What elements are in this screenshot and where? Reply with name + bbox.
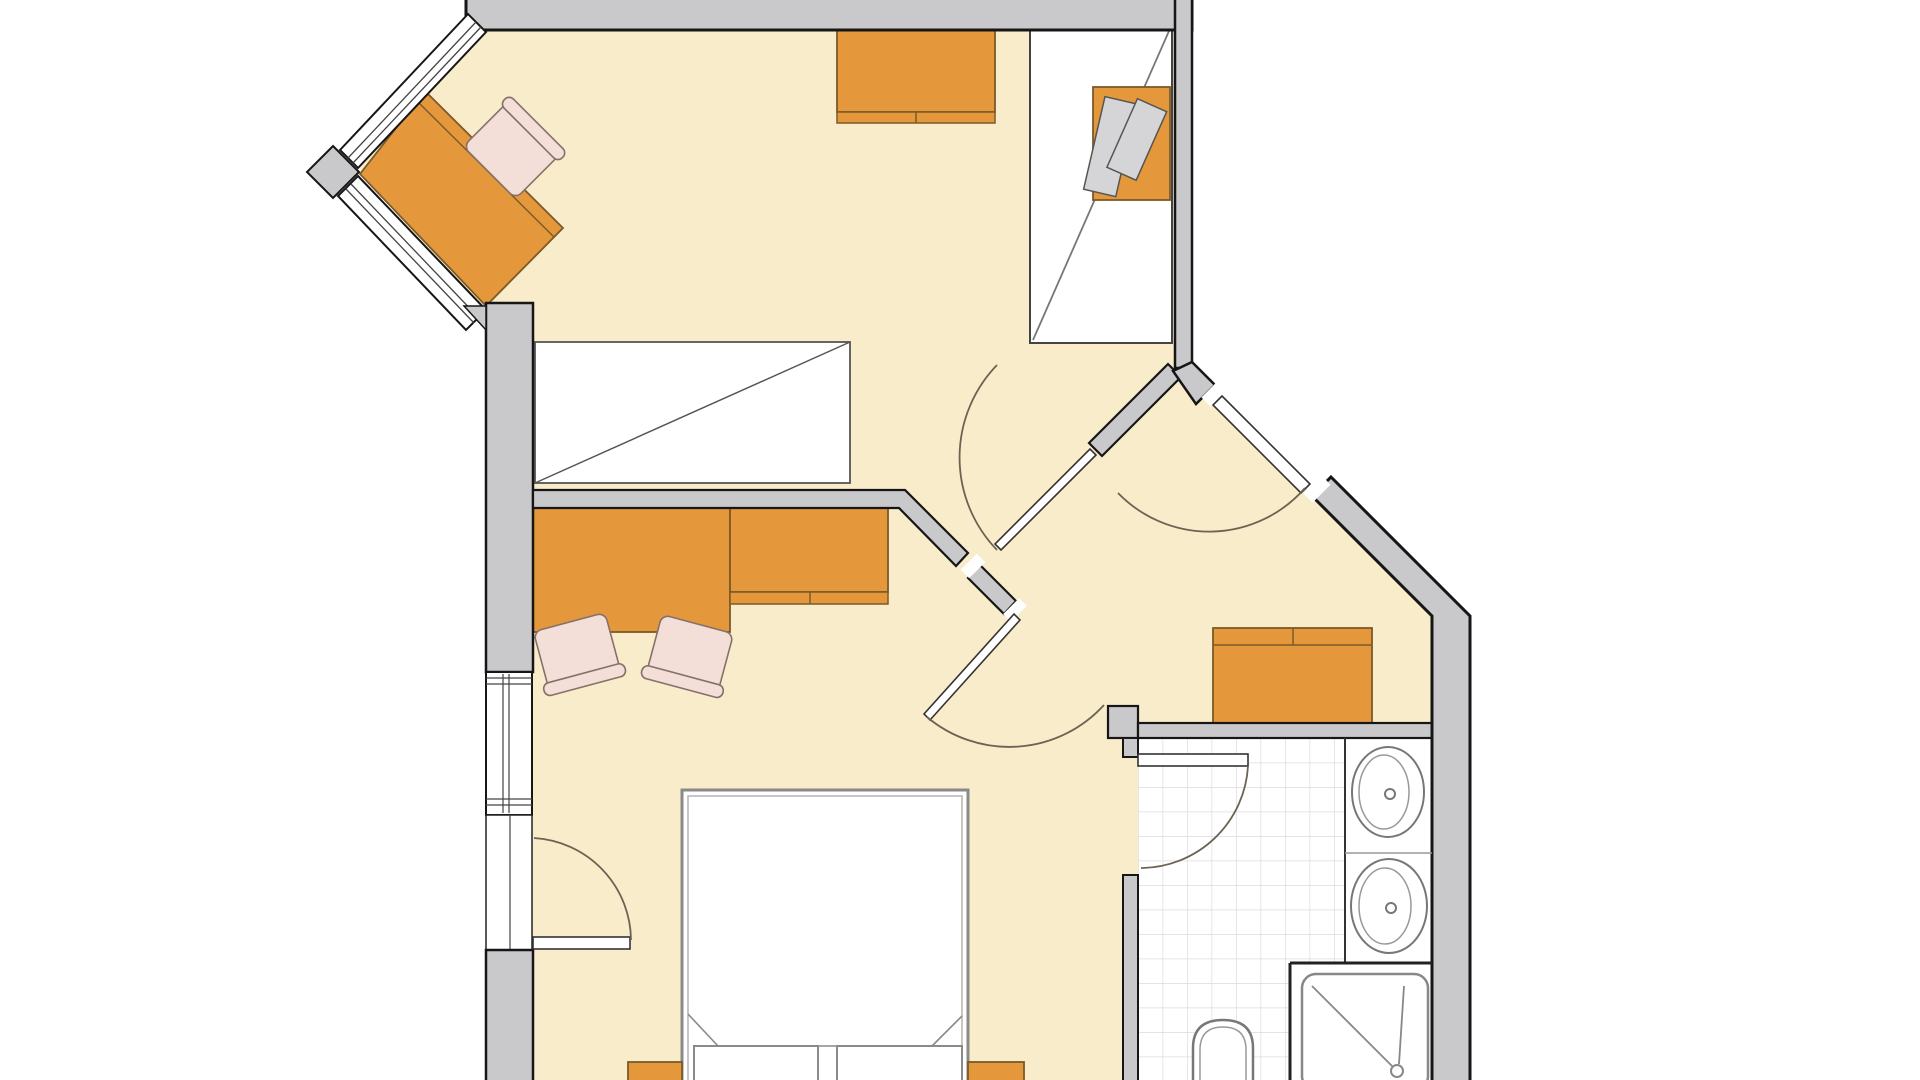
bed-mattress-left — [694, 1046, 818, 1080]
toilet — [1193, 1020, 1253, 1080]
bathroom-wall-left-upper — [1123, 738, 1138, 757]
wall-right-upper — [1175, 0, 1192, 368]
wall-left-upper — [486, 303, 533, 672]
bathroom-corner-block — [1108, 706, 1138, 738]
door-leaf-balcony — [533, 937, 630, 949]
bed-mattress-right — [837, 1046, 962, 1080]
desk-right — [730, 508, 888, 592]
nightstand-left — [628, 1062, 682, 1080]
shower-tray — [1302, 974, 1428, 1080]
floor-plan-svg — [0, 0, 1920, 1080]
shower-drain — [1391, 1065, 1403, 1077]
floor-plan-canvas — [0, 0, 1920, 1080]
wall-left-lower — [486, 950, 533, 1080]
wall-top — [466, 0, 1192, 30]
bathroom-wall-top — [1138, 723, 1432, 738]
double-bed-frame — [682, 790, 968, 1080]
dresser — [837, 27, 995, 112]
bathroom-wall-left-lower — [1123, 875, 1138, 1080]
nightstand-right — [968, 1062, 1024, 1080]
door-leaf-bathroom — [1138, 754, 1248, 766]
sink-2-faucet — [1386, 903, 1396, 913]
desk-left — [533, 508, 730, 632]
desk-right-drawer — [730, 592, 888, 604]
floor-plan-root — [307, 0, 1470, 1080]
bathroom-tiles-main — [1138, 738, 1345, 963]
sink-1-faucet — [1385, 789, 1395, 799]
balcony-door-frame — [486, 815, 532, 950]
